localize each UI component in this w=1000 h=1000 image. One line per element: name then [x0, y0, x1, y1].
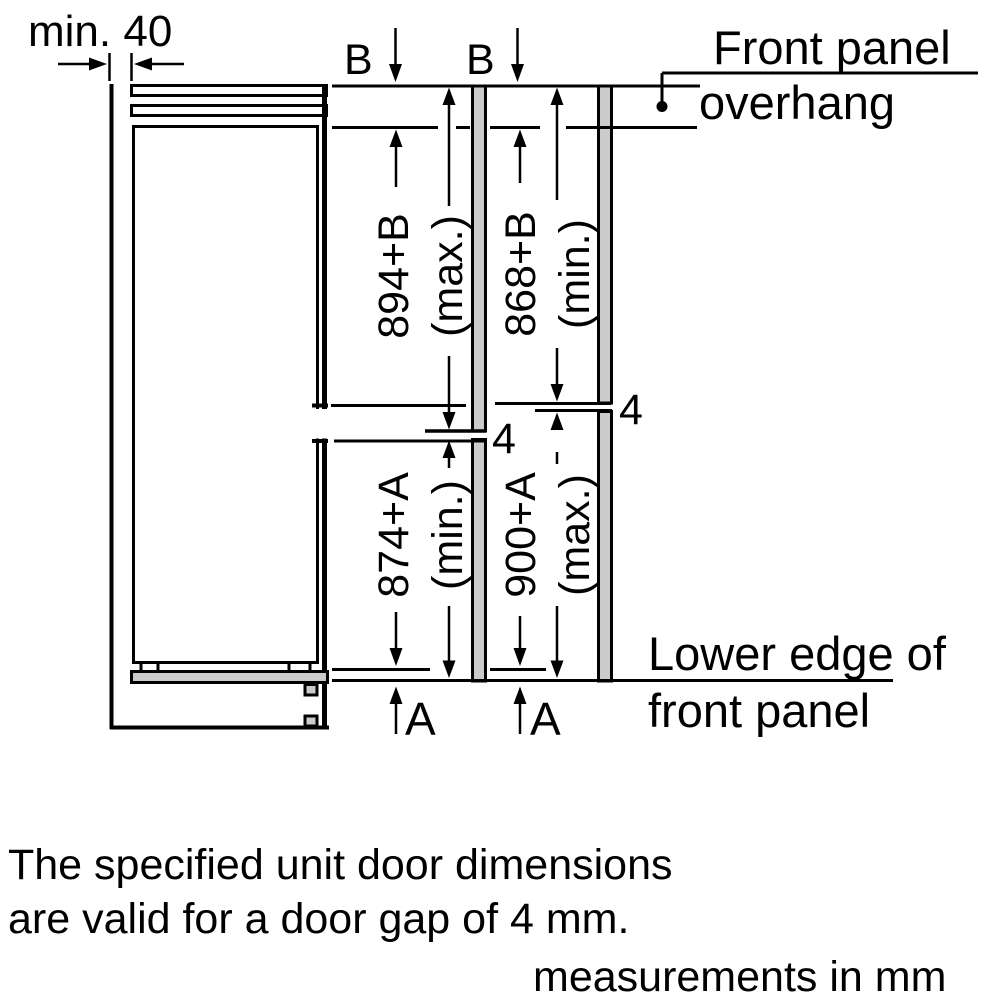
gap-label-right: 4 [619, 386, 643, 434]
dim-868-top-arrowhead [551, 88, 564, 106]
appliance-door-split-gap [311, 409, 330, 439]
cabinet-top-rail-2 [132, 106, 327, 116]
front-panel-right-lower [599, 412, 612, 682]
b-left-arrowhead-down [389, 64, 402, 82]
dim-upper-left-value: 894+B [370, 213, 418, 339]
dim-894-top-arrowhead [443, 88, 456, 106]
plinth-bar [132, 672, 328, 683]
dim-left-inner-bottom-arrowhead [390, 648, 403, 666]
dim-label-lower-left: 874+A (min.) [370, 472, 472, 598]
appliance-door [134, 127, 318, 663]
dim-upper-right-value: 868+B [497, 211, 545, 337]
dim-label-upper-right: 868+B (min.) [497, 211, 599, 337]
cabinet-top-rail-1 [132, 86, 327, 96]
dim-label-lower-right: 900+A (max.) [497, 472, 599, 598]
dim-label-upper-left: 894+B (max.) [370, 213, 472, 339]
gap-label-left: 4 [492, 415, 516, 463]
note-line-2: are valid for a door gap of 4 mm. [8, 895, 629, 943]
lower-edge-line1: Lower edge of [648, 627, 947, 680]
dim-upper-left-qualifier: (max.) [424, 215, 472, 337]
b-label-right: B [466, 36, 495, 84]
dim-900-bottom-arrowhead [551, 661, 564, 679]
front-panel-leader-dot [657, 101, 668, 112]
b-label-left: B [344, 36, 373, 84]
a-label-right: A [530, 693, 561, 745]
a-right-arrowhead-up [514, 687, 527, 705]
dim-lower-left-qualifier: (min.) [424, 480, 472, 590]
hinge-block-upper [305, 685, 317, 696]
dim-lower-right-value: 900+A [497, 472, 545, 598]
door-foot-left [141, 663, 158, 672]
dim-right-inner-top-arrowhead [514, 130, 527, 148]
cabinet [110, 84, 330, 729]
dim-upper-right-qualifier: (min.) [551, 219, 599, 329]
a-label-left: A [405, 693, 436, 745]
min40-label: min. 40 [28, 7, 172, 56]
lower-edge-line2: front panel [648, 684, 870, 737]
front-panel-left-lower [473, 440, 486, 682]
dim-894-bottom-arrowhead [443, 412, 456, 430]
diagram-canvas: min. 40 B B Front panel overhang 4 4 Low… [0, 0, 1000, 1000]
dim-874-bottom-arrowhead [443, 661, 456, 679]
installation-diagram: min. 40 B B Front panel overhang 4 4 Low… [0, 0, 1000, 1000]
front-panel-left-upper [473, 86, 486, 431]
note-line-1: The specified unit door dimensions [8, 841, 672, 889]
front-panel-right-upper [599, 86, 612, 403]
front-panel-overhang-line1: Front panel [713, 21, 951, 74]
front-panel-overhang-line2: overhang [699, 76, 895, 129]
dim-868-bottom-arrowhead [551, 384, 564, 402]
units-note: measurements in mm [533, 953, 946, 1000]
footnotes: The specified unit door dimensions are v… [8, 841, 946, 1000]
min40-dimension [58, 53, 184, 81]
dim-right-inner-bottom-arrowhead [514, 648, 527, 666]
a-left-arrowhead-up [390, 687, 403, 705]
door-foot-right [289, 663, 310, 672]
dim-874-top-arrowhead [443, 441, 456, 459]
b-right-arrowhead-down [511, 64, 524, 82]
dim-900-top-arrowhead [551, 413, 564, 431]
hinge-block-lower [305, 716, 317, 726]
dim-lower-left-value: 874+A [370, 472, 418, 598]
dim-left-inner-top-arrowhead [390, 130, 403, 148]
min40-arrowhead-left [89, 58, 107, 71]
min40-arrowhead-right [134, 58, 152, 71]
dim-lower-right-qualifier: (max.) [551, 474, 599, 596]
